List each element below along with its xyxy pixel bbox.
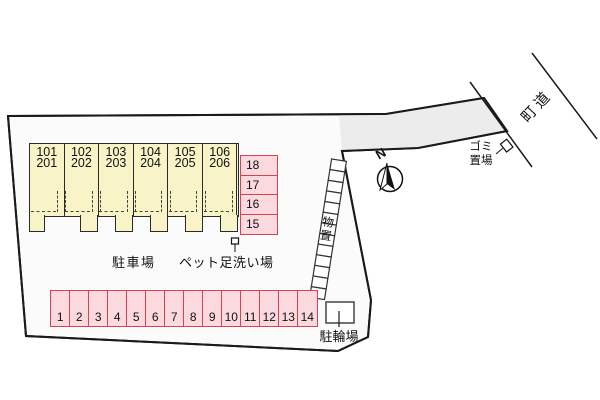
building-unit: 102202	[65, 144, 100, 216]
parking-spot-number: 8	[190, 310, 197, 326]
parking-spot: 9	[202, 290, 223, 327]
parking-spot: 3	[88, 290, 109, 327]
interior-dashed-line	[169, 211, 194, 212]
interior-dashed-line	[65, 211, 90, 212]
pet-wash-label: ペット足洗い場	[179, 252, 274, 271]
unit-number-second-floor: 205	[168, 158, 202, 169]
parking-spot-number: 2	[76, 310, 83, 326]
parking-spot-number: 16	[246, 197, 259, 211]
pet-wash-icon	[232, 238, 239, 244]
building-unit: 105205	[168, 144, 203, 216]
interior-dashed-line	[204, 211, 229, 212]
interior-dashed-line	[161, 191, 162, 212]
parking-spot-number: 11	[244, 310, 256, 326]
parking-spot: 18	[240, 155, 278, 176]
parking-spot-number: 18	[246, 158, 259, 172]
parking-spot: 12	[259, 290, 280, 327]
building-units: 101201102202103203104204105205106206	[29, 143, 239, 217]
interior-dashed-line	[205, 191, 206, 212]
parking-spot: 2	[69, 290, 90, 327]
interior-dashed-line	[196, 191, 197, 212]
unit-number-second-floor: 206	[203, 158, 237, 169]
parking-spot: 15	[240, 214, 278, 235]
parking-spot: 13	[278, 290, 299, 327]
entrance-porch	[115, 215, 134, 232]
parking-spot: 4	[107, 290, 128, 327]
unit-number-second-floor: 202	[65, 158, 99, 169]
parking-spot-number: 6	[152, 310, 159, 326]
compass	[378, 163, 403, 192]
interior-dashed-line	[100, 191, 101, 212]
parking-spot: 16	[240, 194, 278, 215]
bicycle-parking-box	[326, 302, 354, 323]
parking-spot: 11	[240, 290, 261, 327]
parking-spot-number: 5	[133, 310, 140, 326]
unit-number-second-floor: 201	[30, 158, 64, 169]
garbage-label-line1: ゴミ	[463, 141, 499, 155]
parking-spot: 17	[240, 175, 278, 196]
parking-spot: 5	[126, 290, 147, 327]
parking-spot-number: 14	[301, 310, 314, 326]
unit-number-second-floor: 204	[134, 158, 168, 169]
interior-dashed-line	[127, 191, 128, 212]
interior-dashed-line	[170, 191, 171, 212]
interior-dashed-line	[134, 211, 159, 212]
parking-spot-number: 10	[225, 310, 238, 326]
parking-row: 1234567891011121314	[50, 290, 318, 327]
parking-spot-number: 9	[209, 310, 216, 326]
entrance-porch	[29, 215, 45, 232]
parking-spot-number: 13	[282, 310, 295, 326]
parking-spot: 1	[50, 290, 71, 327]
interior-dashed-line	[232, 191, 233, 212]
parking-spot: 14	[297, 290, 318, 327]
building-unit: 104204	[134, 144, 169, 216]
parking-spot: 10	[221, 290, 242, 327]
entrance-porch	[185, 215, 204, 232]
interior-dashed-line	[92, 191, 93, 212]
parking-lot-label: 駐車場	[112, 252, 156, 271]
parking-spot-number: 7	[171, 310, 178, 326]
bicycle-parking-label: 駐輪場	[314, 326, 364, 345]
parking-column: 18171615	[240, 155, 278, 235]
parking-spot-number: 4	[114, 310, 121, 326]
parking-spot-number: 15	[246, 217, 259, 231]
site-plan: 101201102202103203104204105205106206 181…	[0, 0, 600, 400]
interior-dashed-line	[99, 211, 124, 212]
parking-spot-number: 1	[57, 310, 64, 326]
parking-spot: 8	[183, 290, 204, 327]
building-unit: 101201	[30, 144, 65, 216]
parking-spot: 6	[145, 290, 166, 327]
parking-spot-number: 17	[246, 178, 259, 192]
unit-number-second-floor: 203	[99, 158, 133, 169]
interior-dashed-line	[31, 211, 56, 212]
parking-spot-number: 12	[263, 310, 276, 326]
interior-dashed-line	[135, 191, 136, 212]
parking-spot-number: 3	[95, 310, 102, 326]
entrance-porch	[80, 215, 99, 232]
parking-spot: 7	[164, 290, 185, 327]
interior-dashed-line	[65, 191, 66, 212]
interior-dashed-line	[57, 191, 58, 212]
entrance-porch	[150, 215, 169, 232]
garbage-label-line2: 置場	[463, 155, 499, 169]
building-unit: 103203	[99, 144, 134, 216]
garbage-label: ゴミ 置場	[463, 141, 499, 168]
garbage-icon	[500, 139, 512, 152]
entrance-porch	[220, 215, 238, 232]
